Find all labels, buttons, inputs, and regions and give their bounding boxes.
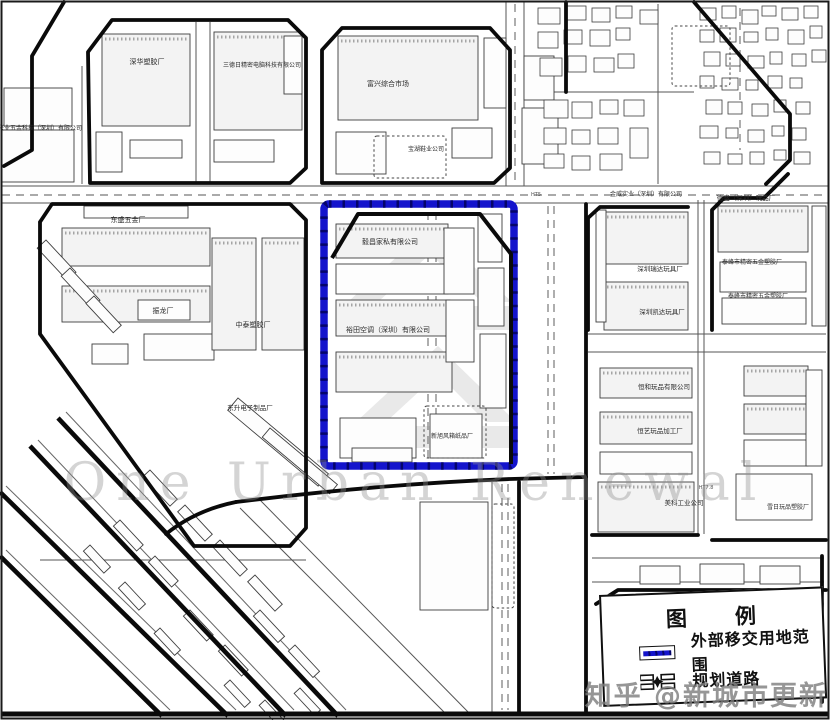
village-building [700, 126, 718, 138]
village-building [750, 152, 764, 164]
village-building [706, 100, 722, 114]
village-building [630, 128, 648, 158]
village-building [538, 32, 558, 48]
building-footprint [92, 344, 128, 364]
village-building [792, 54, 806, 66]
village-building [598, 128, 618, 144]
map-label: 三德日精密电脑科技有限公司 [223, 61, 301, 69]
road-code-label: HT5 [531, 192, 541, 198]
village-building [766, 28, 778, 40]
building-footprint [452, 128, 492, 158]
center-watermark-text: One Urban Renewal [64, 453, 767, 513]
building-footprint [144, 334, 214, 360]
building-footprint [338, 36, 478, 120]
building-footprint [62, 228, 210, 266]
village-building [770, 52, 782, 64]
angled-building [253, 610, 284, 642]
building-footprint [420, 502, 488, 610]
map-label: 宝湖鞋业公司 [408, 145, 444, 153]
building-footprint [806, 370, 822, 466]
map-label: 德盛（深圳）玩品厂 [717, 193, 776, 202]
planning-map-screenshot: 深华塑胶厂三德日精密电脑科技有限公司富兴综合市场宝湖鞋业公司兴业五金科技（深圳）… [0, 0, 830, 720]
village-building [594, 58, 614, 72]
map-label: 东盛五金厂 [111, 215, 146, 224]
diagonal-road-line [0, 556, 162, 716]
building-footprint [640, 566, 680, 584]
angled-building [288, 645, 319, 677]
angled-building [148, 556, 178, 587]
building-footprint [336, 132, 386, 174]
village-building [812, 50, 826, 62]
angled-building [248, 575, 283, 611]
building-footprint [446, 300, 474, 362]
village-building [722, 6, 736, 18]
village-building [768, 76, 782, 88]
village-building [544, 128, 566, 144]
building-footprint [4, 88, 72, 126]
map-label: 中泰塑胶厂 [236, 320, 271, 329]
legend-box: 图 例 外部移交用地范围 规划道路 [599, 586, 827, 707]
map-label: 新旭风箱纸品厂 [431, 432, 473, 440]
building-footprint [336, 264, 448, 294]
transfer-area-swatch-icon [639, 645, 676, 660]
village-building [728, 102, 742, 114]
map-label: 兴业五金科技（深圳）有限公司 [0, 124, 82, 132]
angled-building [118, 582, 145, 610]
building-footprint [212, 238, 256, 350]
building-footprint [444, 228, 474, 294]
building-footprint [2, 130, 74, 182]
building-footprint [700, 564, 744, 584]
map-label: 泰峰市精密五金塑胶厂 [722, 258, 782, 266]
building-footprint [214, 140, 274, 162]
village-building [792, 128, 806, 140]
village-building [810, 26, 822, 38]
village-building [782, 8, 798, 20]
village-building [572, 130, 590, 144]
village-building [804, 6, 818, 18]
village-building [618, 54, 634, 68]
building-footprint [130, 140, 182, 158]
village-building [772, 126, 784, 136]
angled-building [224, 680, 250, 707]
village-building [544, 154, 564, 168]
village-building [728, 154, 742, 164]
building-footprint [478, 268, 504, 326]
village-building [726, 128, 738, 138]
building-footprint [718, 206, 808, 252]
angled-building [154, 628, 180, 655]
building-footprint [604, 212, 688, 264]
building-footprint [604, 282, 688, 330]
village-building [752, 104, 768, 116]
village-building [790, 78, 802, 88]
village-building [566, 6, 586, 20]
angled-building [83, 545, 110, 573]
planned-road-icon [640, 673, 677, 688]
road-line [240, 508, 448, 716]
village-building [624, 100, 644, 116]
map-label: 恒和玩品有限公司 [638, 382, 690, 391]
village-building-cluster [538, 6, 826, 170]
village-building [748, 130, 764, 142]
village-building [568, 56, 586, 72]
village-building [538, 8, 560, 24]
village-building [590, 30, 610, 46]
map-label: 毅昌家私有限公司 [362, 237, 418, 246]
building-footprint [102, 34, 190, 126]
village-building [774, 150, 786, 160]
center-watermark: One Urban Renewal [64, 453, 767, 513]
village-building [600, 100, 618, 114]
building-footprint [812, 206, 826, 326]
building-footprint [336, 352, 452, 392]
map-label: 深圳瑞达玩具厂 [637, 264, 683, 273]
building-footprint [480, 334, 506, 408]
building-footprint [484, 38, 506, 108]
map-label: 振龙厂 [153, 306, 174, 315]
map-label: 深华塑胶厂 [130, 57, 165, 66]
village-building [796, 102, 810, 114]
dashed-building [492, 504, 514, 608]
village-building [592, 8, 610, 22]
building-footprint [262, 238, 304, 350]
village-building [640, 10, 658, 24]
building-footprint [760, 566, 800, 584]
village-building [616, 28, 630, 40]
map-label: 雪日玩品塑胶厂 [767, 503, 809, 511]
map-label: 恒艺玩品加工厂 [637, 426, 683, 435]
village-building [704, 152, 720, 164]
building-footprint [96, 132, 122, 172]
village-building [700, 30, 714, 42]
map-label: 富兴综合市场 [367, 79, 409, 88]
village-building [746, 80, 758, 90]
village-building [572, 156, 590, 170]
village-building [742, 10, 758, 24]
map-label: 裕田空调（深圳）有限公司 [346, 325, 430, 334]
village-building [600, 154, 622, 170]
village-building [544, 100, 568, 118]
map-label: 东升电子制品厂 [227, 403, 273, 412]
village-building [572, 102, 592, 118]
village-building [762, 6, 776, 16]
map-label: 泰峰市精密五金塑胶厂 [728, 292, 788, 300]
legend-item-label: 规划道路 [692, 665, 761, 692]
village-building [744, 32, 758, 42]
village-building [616, 6, 632, 18]
rail-edge-line [6, 550, 170, 710]
village-building [788, 30, 804, 44]
building-footprints [2, 32, 826, 610]
map-label: 金威实业（深圳）有限公司 [610, 190, 682, 198]
building-footprint [720, 262, 806, 292]
village-building [794, 152, 810, 164]
village-building [540, 58, 562, 76]
building-footprint [722, 298, 806, 324]
building-footprint [596, 210, 606, 322]
village-building [704, 52, 720, 66]
legend-item-transfer-area: 外部移交用地范围 [639, 637, 824, 662]
map-label: 深圳凯达玩具厂 [639, 307, 685, 316]
